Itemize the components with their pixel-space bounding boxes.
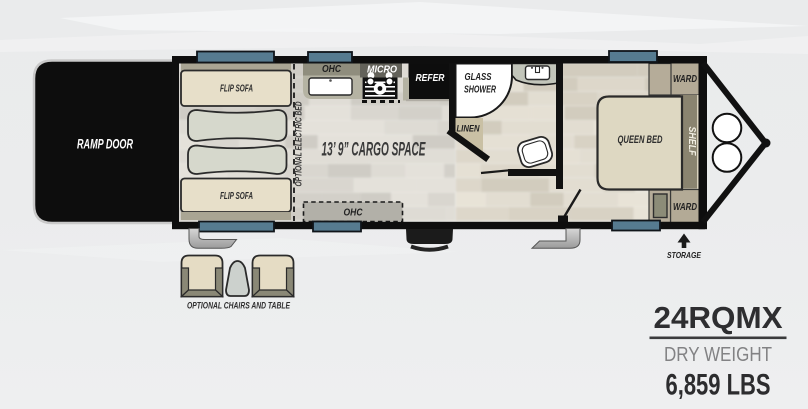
svg-text:OHC: OHC: [322, 64, 342, 75]
svg-text:FLIP SOFA: FLIP SOFA: [220, 190, 253, 202]
svg-text:SHOWER: SHOWER: [464, 85, 497, 96]
svg-text:WARD: WARD: [673, 202, 697, 213]
svg-text:GLASS: GLASS: [465, 72, 492, 83]
svg-text:DRY WEIGHT: DRY WEIGHT: [664, 343, 772, 366]
svg-text:13’ 9” CARGO SPACE: 13’ 9” CARGO SPACE: [322, 140, 427, 161]
svg-text:SHELF: SHELF: [686, 127, 697, 157]
svg-text:WARD: WARD: [673, 74, 697, 85]
svg-text:STORAGE: STORAGE: [667, 250, 701, 260]
svg-text:OHC: OHC: [344, 208, 364, 219]
svg-text:OPTIONAL CHAIRS AND TABLE: OPTIONAL CHAIRS AND TABLE: [187, 301, 291, 311]
svg-text:6,859 LBS: 6,859 LBS: [666, 369, 771, 402]
svg-text:QUEEN BED: QUEEN BED: [618, 134, 663, 146]
svg-text:LINEN: LINEN: [457, 124, 481, 135]
svg-text:FLIP SOFA: FLIP SOFA: [220, 83, 253, 95]
svg-text:RAMP DOOR: RAMP DOOR: [77, 137, 133, 152]
svg-text:REFER: REFER: [416, 73, 446, 84]
svg-text:OPTIONAL ELECTRIC BED: OPTIONAL ELECTRIC BED: [294, 101, 305, 186]
svg-text:24RQMX: 24RQMX: [654, 300, 783, 335]
